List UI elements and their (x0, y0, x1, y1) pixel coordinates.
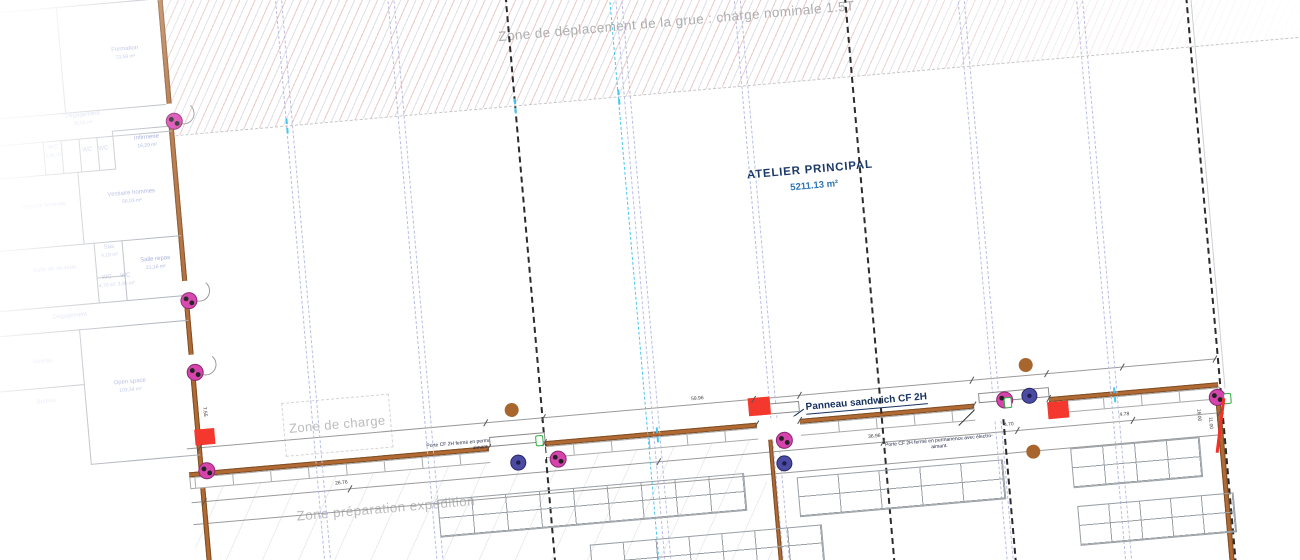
room-label: Vestiaire femmes (20, 201, 67, 213)
plan-rotated-layer: Zone de déplacement de la grue : charge … (0, 0, 1300, 560)
room-label: Formation73,58 m² (111, 45, 139, 62)
hall-name: ATELIER PRINCIPAL (746, 159, 873, 182)
wing-wall (0, 0, 161, 18)
wing-wall (121, 240, 127, 300)
wing-wall (56, 7, 66, 113)
fire-equipment-marker (748, 396, 771, 416)
storage-rack (1077, 492, 1237, 546)
wing-wall (91, 454, 201, 465)
door-closer-symbol (1003, 397, 1012, 409)
room-label: Dégagement35,02 m² (65, 111, 100, 128)
drain-dot-symbol (1018, 357, 1033, 372)
room-label: WC (98, 145, 109, 154)
wing-wall (0, 320, 189, 340)
dimension-label: 26.76 (335, 480, 348, 487)
dimension-label: 59.96 (691, 395, 704, 402)
dimension-label: 36.96 (868, 433, 881, 440)
room-label: Bureau (36, 398, 56, 407)
room-label: Salle repas21,16 m² (140, 255, 171, 272)
dimension-label: 4.78 (1119, 411, 1129, 418)
room-label: Salle de réunion (33, 264, 77, 276)
electro-magnet-symbol (776, 455, 793, 472)
floor-plan-canvas: Zone de déplacement de la grue : charge … (0, 0, 1300, 560)
wing-wall (79, 329, 92, 464)
wing-wall (0, 295, 186, 315)
column-magenta-symbol (180, 291, 198, 309)
dimension-label: 11.00 (1207, 417, 1214, 430)
wing-wall (0, 235, 181, 255)
room-label: WC3,96 m² (117, 272, 135, 288)
wing-wall (94, 243, 100, 303)
room-label: WC (82, 147, 93, 156)
door-closer-symbol (535, 435, 544, 447)
room-label: Sas4,19 m² (100, 244, 118, 260)
wing-wall (0, 384, 84, 394)
room-label: Bureau (33, 358, 53, 367)
column-magenta-symbol (775, 431, 793, 449)
drain-dot-symbol (504, 402, 519, 417)
column-magenta-symbol (186, 363, 204, 381)
dimension-label: 7.55 (201, 407, 208, 417)
room-label: Dégagement (52, 312, 87, 323)
room-label: WC4,70 m² (98, 274, 116, 290)
dimension-label: 16.00 (1195, 409, 1202, 422)
wing-wall (0, 169, 116, 184)
room-label: Vestiaire hommes56,03 m² (107, 188, 156, 206)
fire-equipment-marker (1047, 400, 1069, 419)
drain-dot-symbol (1026, 444, 1041, 459)
room-label: Infirmerie16,29 m² (134, 134, 160, 150)
hall-area: 5211.13 m² (790, 178, 839, 193)
wing-wall (77, 172, 84, 244)
wing-wall (78, 139, 82, 172)
dimension-label: 4.70 (1004, 421, 1014, 428)
room-label: WC3,56 m² (44, 144, 62, 160)
fire-equipment-marker (194, 428, 215, 446)
room-label: Open space103,34 m² (113, 378, 146, 395)
